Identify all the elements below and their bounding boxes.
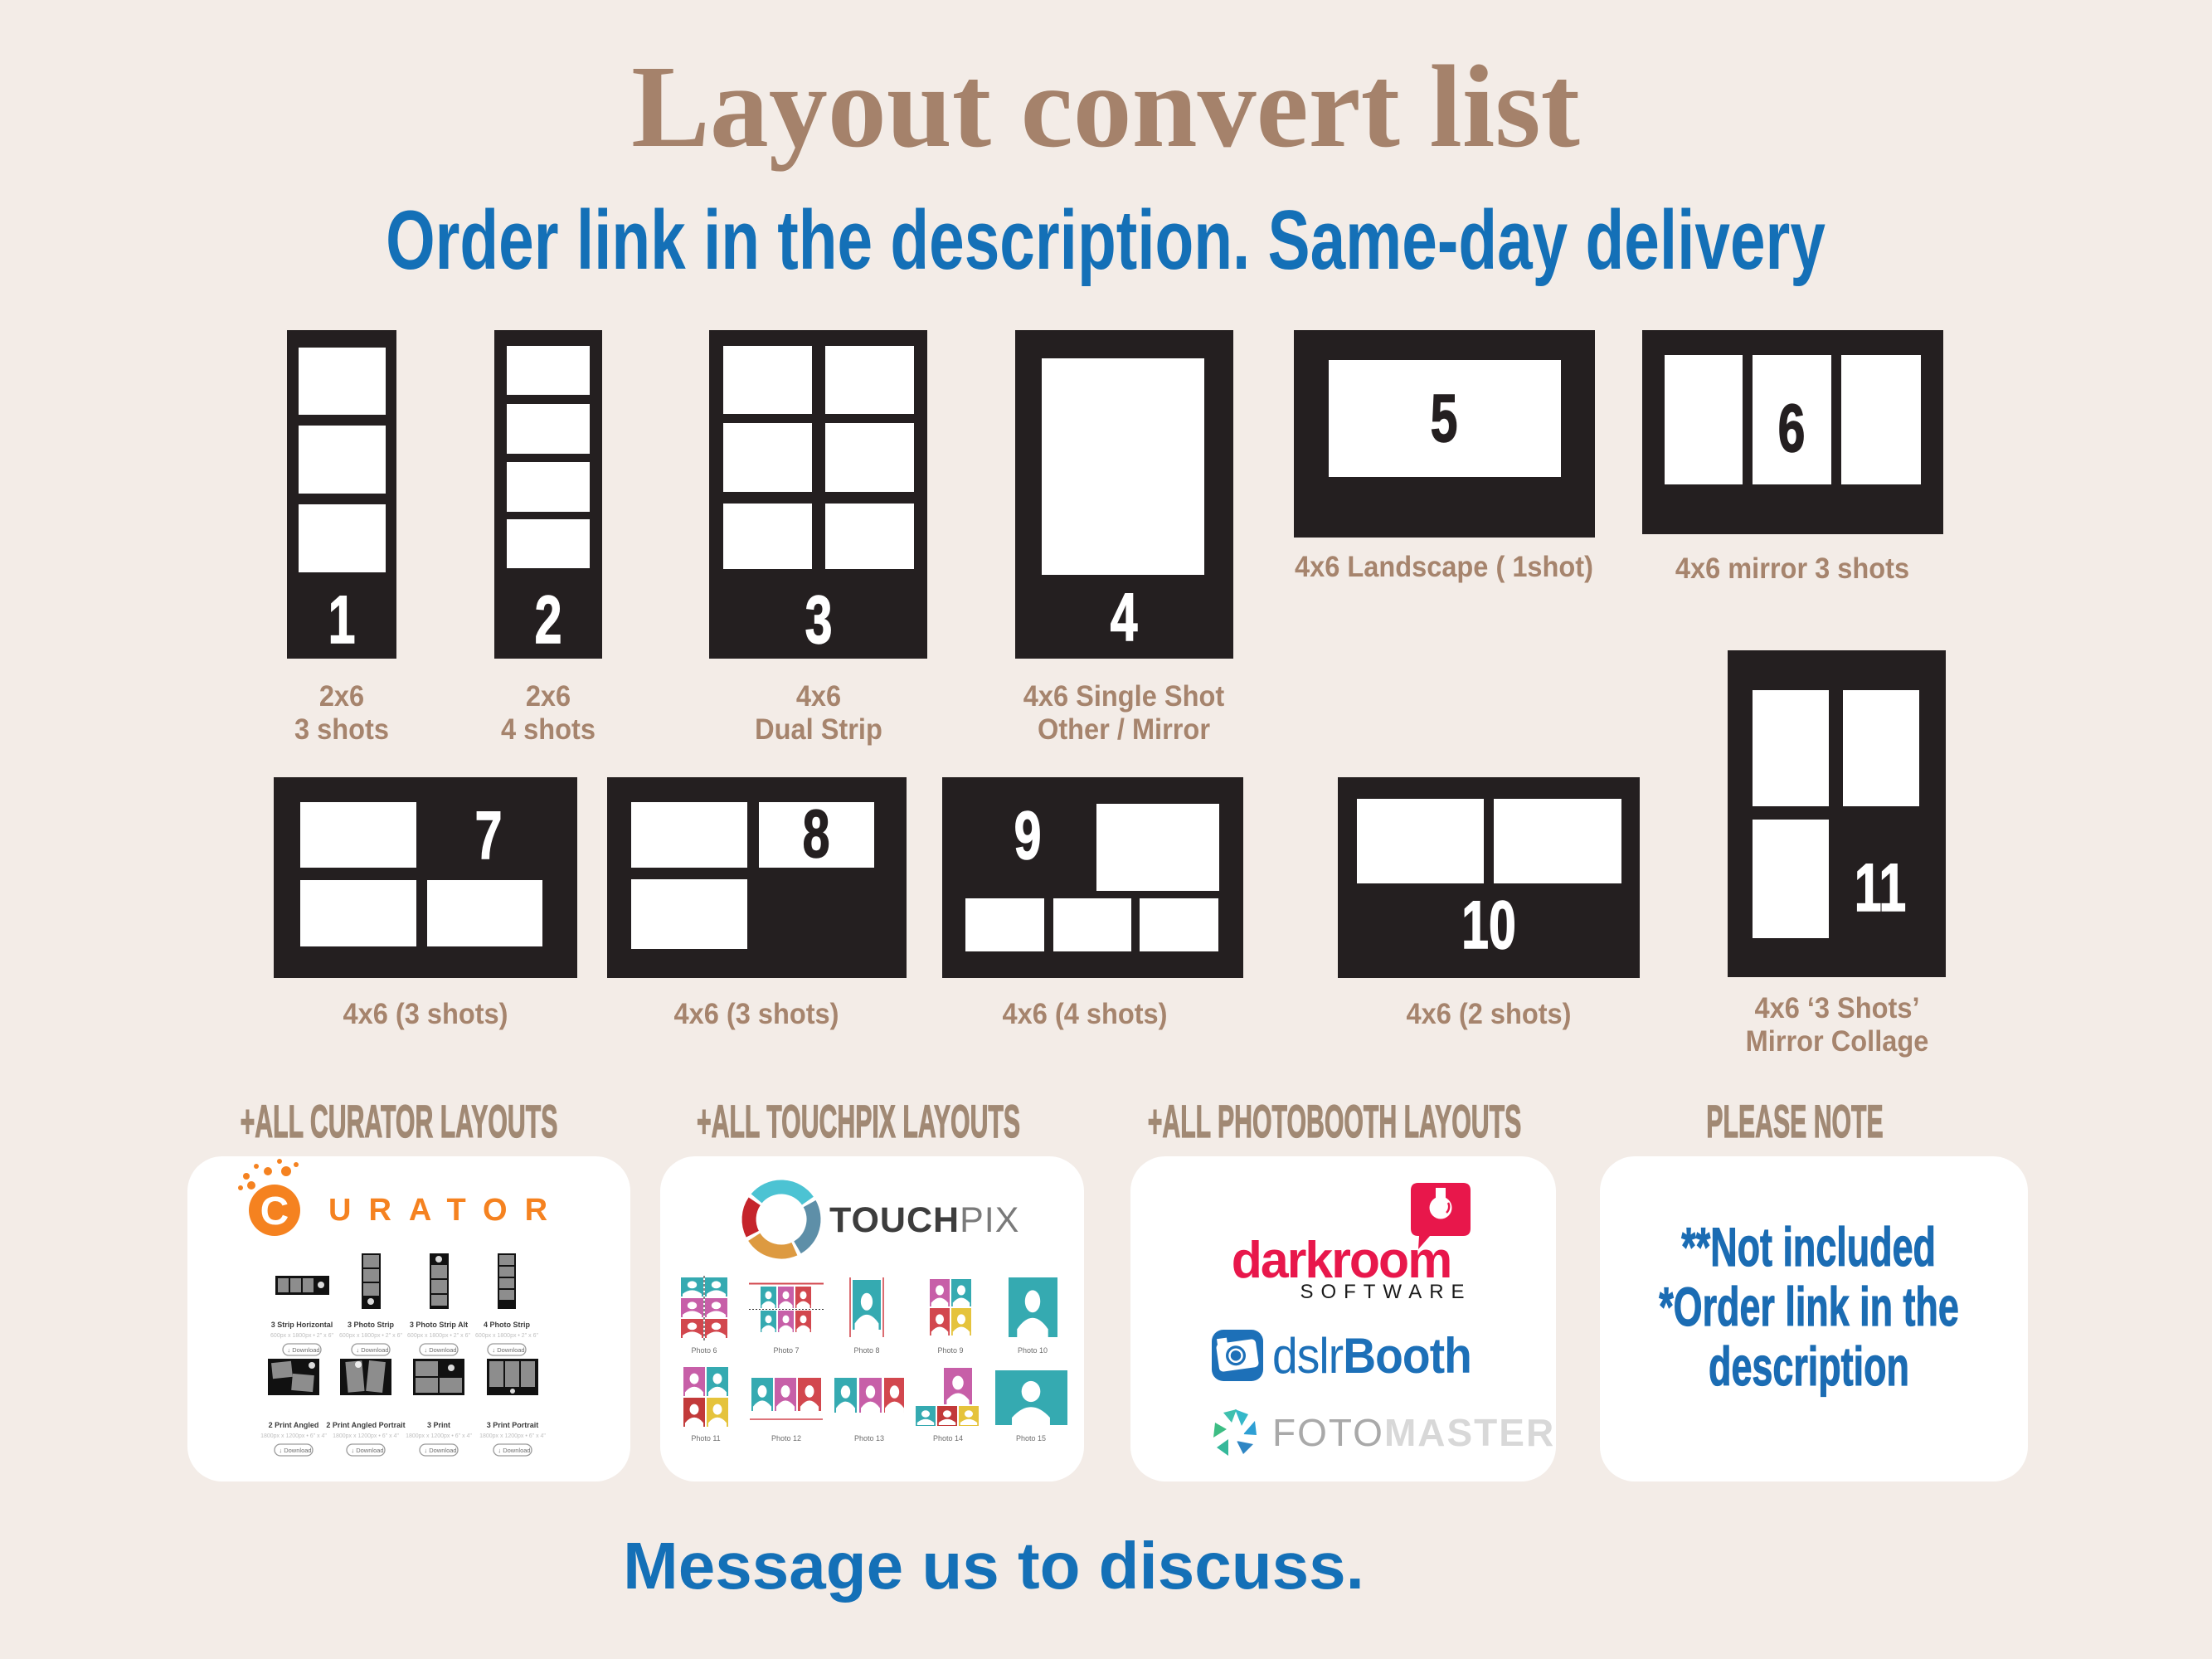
svg-text:↓ Download: ↓ Download <box>287 1346 319 1354</box>
svg-text:TOUCHPIX: TOUCHPIX <box>829 1200 1019 1240</box>
svg-text:600px x 1800px • 2" x 6": 600px x 1800px • 2" x 6" <box>475 1333 538 1339</box>
svg-text:↓ Download: ↓ Download <box>492 1346 524 1354</box>
svg-text:↓ Download: ↓ Download <box>356 1346 388 1354</box>
svg-text:600px x 1800px • 2" x 6": 600px x 1800px • 2" x 6" <box>407 1333 470 1339</box>
svg-text:↓ Download: ↓ Download <box>424 1447 456 1454</box>
svg-text:Photo 7: Photo 7 <box>773 1346 799 1355</box>
svg-text:2 Print Angled Portrait: 2 Print Angled Portrait <box>326 1421 405 1429</box>
svg-text:600px x 1800px • 2" x 6": 600px x 1800px • 2" x 6" <box>270 1333 333 1339</box>
svg-text:Photo 15: Photo 15 <box>1016 1434 1046 1443</box>
svg-text:3 Strip Horizontal: 3 Strip Horizontal <box>271 1321 333 1329</box>
svg-text:Photo 8: Photo 8 <box>853 1346 879 1355</box>
svg-text:2 Print Angled: 2 Print Angled <box>269 1421 319 1429</box>
svg-text:FOTOMASTER: FOTOMASTER <box>1272 1411 1555 1454</box>
svg-text:↓ Download: ↓ Download <box>498 1447 530 1454</box>
svg-text:4 Photo Strip: 4 Photo Strip <box>484 1321 531 1329</box>
svg-text:Photo 13: Photo 13 <box>854 1434 884 1443</box>
svg-text:↓ Download: ↓ Download <box>424 1346 456 1354</box>
svg-text:SOFTWARE: SOFTWARE <box>1300 1281 1471 1303</box>
svg-text:1800px x 1200px • 6" x 4": 1800px x 1200px • 6" x 4" <box>406 1433 472 1439</box>
svg-text:3 Photo Strip Alt: 3 Photo Strip Alt <box>410 1321 468 1329</box>
svg-text:dslrBooth: dslrBooth <box>1272 1329 1471 1384</box>
svg-text:C: C <box>260 1190 289 1233</box>
svg-text:↓ Download: ↓ Download <box>351 1447 383 1454</box>
svg-text:Photo 11: Photo 11 <box>691 1434 720 1443</box>
svg-text:↓ Download: ↓ Download <box>279 1447 311 1454</box>
svg-text:1800px x 1200px • 6" x 4": 1800px x 1200px • 6" x 4" <box>479 1433 546 1439</box>
svg-text:3 Print Portrait: 3 Print Portrait <box>487 1421 539 1429</box>
svg-text:Photo 14: Photo 14 <box>933 1434 963 1443</box>
svg-text:Photo 6: Photo 6 <box>691 1346 717 1355</box>
svg-text:URATOR: URATOR <box>328 1193 565 1228</box>
svg-text:Photo 10: Photo 10 <box>1018 1346 1048 1355</box>
svg-text:600px x 1800px • 2" x 6": 600px x 1800px • 2" x 6" <box>339 1333 402 1339</box>
svg-text:1800px x 1200px • 6" x 4": 1800px x 1200px • 6" x 4" <box>260 1433 327 1439</box>
svg-text:3 Print: 3 Print <box>427 1421 450 1429</box>
svg-text:Photo 12: Photo 12 <box>771 1434 801 1443</box>
svg-text:3 Photo Strip: 3 Photo Strip <box>348 1321 395 1329</box>
svg-text:1800px x 1200px • 6" x 4": 1800px x 1200px • 6" x 4" <box>333 1433 399 1439</box>
svg-text:Photo 9: Photo 9 <box>937 1346 963 1355</box>
